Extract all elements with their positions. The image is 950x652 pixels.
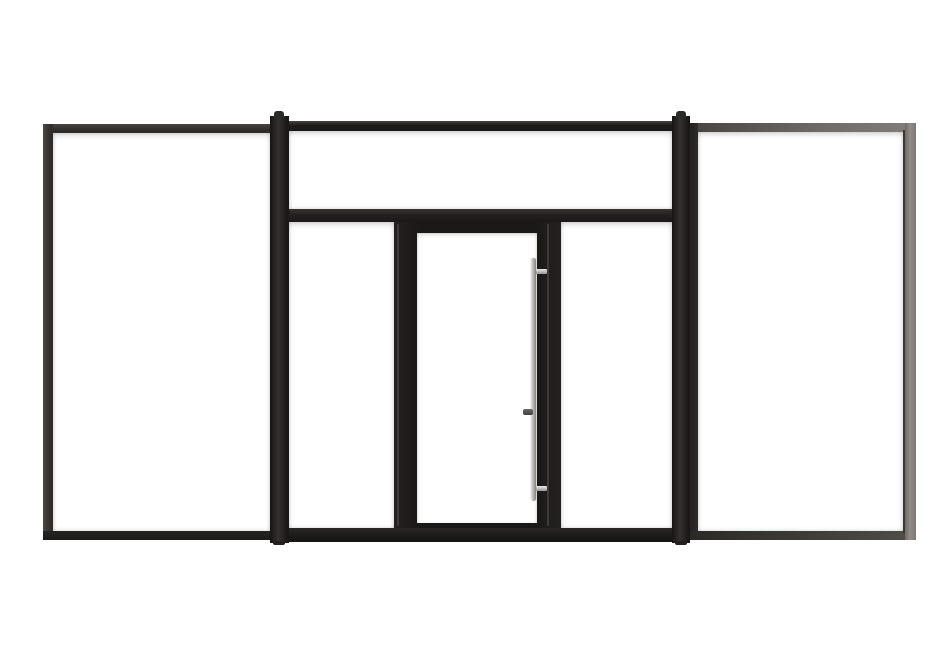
right-panel-right-stile xyxy=(905,123,916,540)
center-top-rail xyxy=(287,121,673,131)
right-sidelight-glass xyxy=(561,222,672,528)
center-transom-rail xyxy=(287,209,673,222)
product-render-scene xyxy=(0,0,950,652)
left-panel-glass xyxy=(53,133,270,531)
left-sidelight-glass xyxy=(289,222,394,528)
transom-window-glass xyxy=(289,131,672,209)
left-panel-top-rail xyxy=(43,124,272,133)
left-panel-bottom-rail xyxy=(43,531,272,540)
center-bottom-rail xyxy=(287,528,673,542)
left-panel-left-stile xyxy=(43,124,53,540)
left-mullion-foot xyxy=(273,541,285,545)
door-pull-handle xyxy=(531,258,536,501)
door-frame-seam-right xyxy=(547,224,549,526)
lock-knob xyxy=(523,409,533,415)
right-panel-top-rail xyxy=(690,123,916,132)
right-mullion xyxy=(672,116,690,543)
door-frame-seam-left xyxy=(397,224,399,526)
right-panel-left-stile xyxy=(690,123,698,540)
right-panel-bottom-rail xyxy=(690,531,916,540)
door-glass xyxy=(417,233,537,523)
right-panel-glass-edge xyxy=(903,130,905,533)
left-mullion-cap xyxy=(274,111,284,118)
handle-bracket-top xyxy=(535,269,547,274)
right-mullion-cap xyxy=(676,111,686,118)
left-mullion xyxy=(270,116,289,543)
right-panel-glass xyxy=(698,132,903,531)
handle-bracket-bottom xyxy=(535,486,547,491)
right-mullion-foot xyxy=(675,541,687,545)
